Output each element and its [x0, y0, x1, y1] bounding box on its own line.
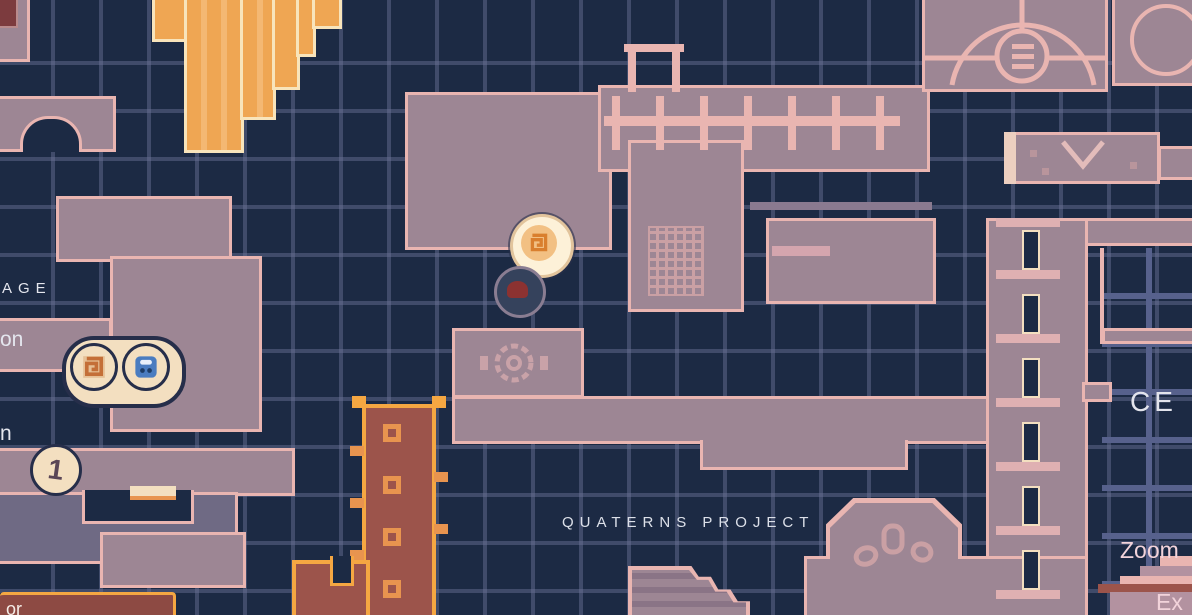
- area-label-partial-right: CE: [1130, 386, 1177, 418]
- orange-staircase-step: [184, 0, 244, 153]
- reactor-dome-icon: [922, 0, 1108, 92]
- map-room: [56, 196, 232, 262]
- spiral-icon: [528, 232, 550, 254]
- twin-marker-pill[interactable]: [62, 336, 186, 408]
- tower-slot: [1022, 550, 1040, 590]
- tower-slot: [1022, 230, 1040, 270]
- scaffold-rail: [604, 116, 900, 126]
- area-label-partial: AGE: [2, 280, 52, 297]
- orange-staircase-step: [152, 0, 188, 42]
- terminal-icon: [133, 354, 159, 380]
- area-label-center: QUATERNS PROJECT: [562, 514, 814, 531]
- map-connector: [1085, 218, 1192, 246]
- room-word-partial: n: [0, 422, 12, 446]
- extinguished-flame-marker[interactable]: [494, 266, 546, 318]
- ladder-post: [628, 48, 636, 92]
- tower-ledge: [996, 526, 1060, 535]
- item-tooltip-box: or: [0, 592, 176, 615]
- ladder-post: [672, 48, 680, 92]
- pixel-dot: [1030, 150, 1037, 157]
- spiral-icon: [82, 355, 106, 379]
- tower-rung: [383, 580, 401, 598]
- tower-slot: [1022, 422, 1040, 462]
- save-terminal-marker[interactable]: [122, 343, 170, 391]
- tower-tab: [350, 498, 364, 508]
- tower-ledge: [996, 590, 1060, 599]
- cream-ledge: [130, 486, 176, 500]
- tower-rung: [383, 528, 401, 546]
- tower-tab: [350, 446, 364, 456]
- tower-ledge: [996, 334, 1060, 343]
- tower-ledge: [996, 462, 1060, 471]
- pixel-dot: [1130, 162, 1137, 169]
- tower-ledge: [996, 270, 1060, 279]
- tower-ledge: [996, 218, 1060, 227]
- tower-tab: [434, 472, 448, 482]
- ladder-cap: [624, 44, 684, 52]
- tower-tab: [352, 396, 366, 408]
- room-edge: [1100, 248, 1104, 344]
- orange-staircase-step: [312, 0, 342, 29]
- pixel-dot: [1042, 168, 1049, 175]
- tower-tab: [432, 396, 446, 408]
- room-word-partial: on: [0, 328, 23, 352]
- map-room-maroon-block: [0, 0, 18, 28]
- map-room: [766, 218, 936, 304]
- inner-platform: [772, 246, 830, 256]
- conveyor-rail: [750, 202, 932, 210]
- map-connector: [1082, 382, 1112, 402]
- item-tooltip-text: or: [6, 599, 22, 615]
- orange-staircase-step: [240, 0, 276, 120]
- box-notch: [330, 556, 354, 586]
- tower-rung: [383, 424, 401, 442]
- tower-slot: [1022, 358, 1040, 398]
- tower-ledge: [996, 398, 1060, 407]
- spiral-rune-marker[interactable]: [70, 343, 118, 391]
- cart-icon: [848, 518, 944, 570]
- zoom-hint: Zoom: [1120, 537, 1179, 564]
- exit-hint-partial: Ex: [1156, 589, 1183, 615]
- hatch-pattern: [648, 226, 704, 296]
- map-room: [100, 532, 246, 588]
- tower-tab: [434, 524, 448, 534]
- chevron-decoration: [1055, 140, 1111, 178]
- map-room: [405, 92, 612, 250]
- map-connector: [1102, 328, 1192, 344]
- marker-number: 1: [46, 453, 66, 487]
- cream-edge: [1004, 132, 1016, 184]
- map-room: [700, 440, 908, 470]
- tower-slot: [1022, 486, 1040, 526]
- circle-decoration: [1130, 4, 1192, 76]
- map-canvas[interactable]: or 1 AGE on: [0, 0, 1192, 615]
- gear-icon: [478, 334, 550, 392]
- tower-slot: [1022, 294, 1040, 334]
- flame-blob-icon: [507, 281, 528, 298]
- map-corridor-long: [452, 396, 998, 444]
- number-flag-marker[interactable]: 1: [30, 444, 82, 496]
- map-room-arm: [1158, 146, 1192, 180]
- tower-rung: [383, 476, 401, 494]
